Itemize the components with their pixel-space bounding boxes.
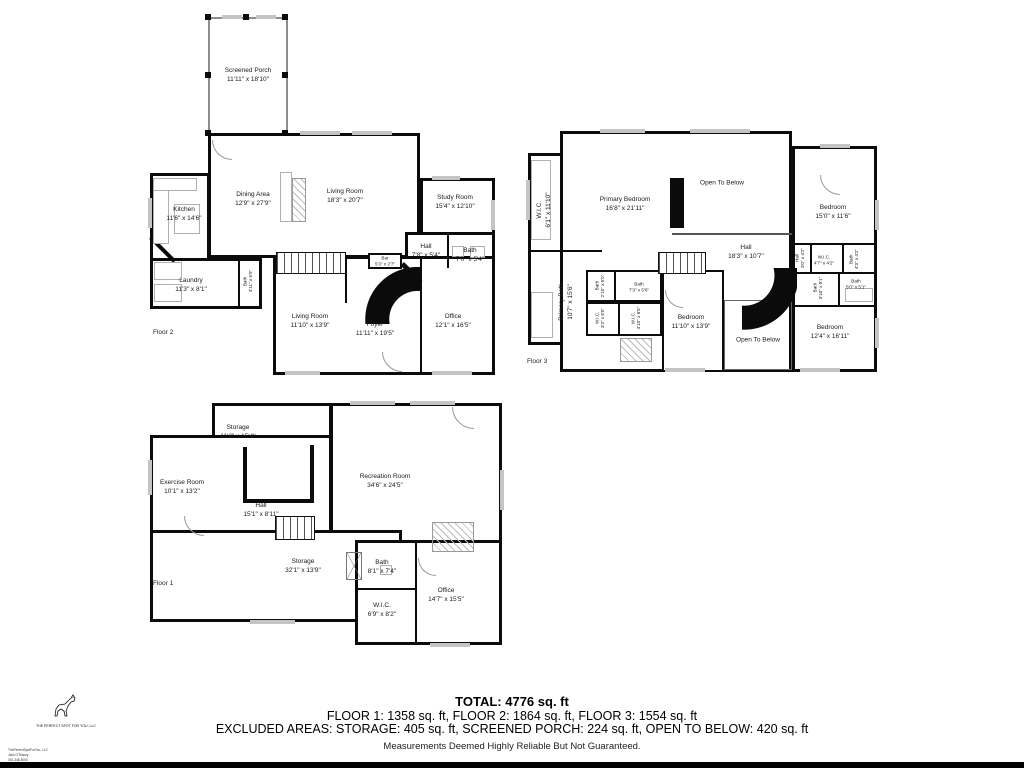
- floor1-notch-wall: [310, 445, 314, 503]
- room-label: Foyer11'11" x 19'5": [356, 320, 394, 338]
- room-label: W.I.C.4'10" x 6'5": [630, 307, 641, 330]
- room-label: Bath3'10" x 5'1": [812, 277, 823, 300]
- room-label: Hall15'1" x 8'11": [243, 501, 278, 519]
- floor-areas-text: FLOOR 1: 1358 sq. ft, FLOOR 2: 1864 sq. …: [0, 709, 1024, 723]
- floor1-bath-wic-partition: [357, 588, 415, 590]
- floor3-right-partition: [792, 272, 877, 274]
- room-label: Bedroom15'0" x 11'6": [815, 203, 850, 221]
- kitchen-counter: [153, 178, 197, 191]
- room-label: Dining Area12'9" x 27'9": [235, 190, 271, 208]
- room-label: Bath2'10" x 5'0": [594, 275, 605, 298]
- floor-2-label: Floor 2: [153, 329, 173, 336]
- window: [148, 460, 152, 495]
- window: [350, 401, 395, 405]
- room-label: W.I.C.6'1" x 11'10": [535, 192, 553, 227]
- floor3-curved-stairs: [742, 268, 797, 330]
- window: [800, 368, 840, 372]
- window: [410, 401, 455, 405]
- porch-post: [243, 14, 249, 20]
- dining-cabinet: [280, 172, 292, 222]
- floor3-balcony-rail: [672, 233, 792, 235]
- window: [148, 198, 152, 228]
- room-label: Bath5'0" x 5'1": [846, 278, 866, 289]
- room-label: Bar5'3" x 2'7": [375, 255, 395, 266]
- room-label: Bath4'11" x 5'5": [242, 270, 253, 292]
- floor3-solid-wall: [670, 178, 684, 228]
- window: [491, 200, 495, 230]
- floor3-bath-split: [614, 272, 616, 300]
- window: [690, 129, 750, 133]
- disclaimer-text: Measurements Deemed Highly Reliable But …: [0, 741, 1024, 752]
- floor3-right-split: [810, 245, 812, 272]
- room-label: Hall7'8" x 5'4": [412, 242, 440, 260]
- floor3-wic-split: [618, 304, 620, 334]
- floor3-right-split: [838, 274, 840, 305]
- floor2-straight-stairs: [276, 252, 346, 274]
- dining-hutch: [292, 178, 306, 222]
- company-name-text: THE PERFECT SPOT FOR YOU, LLC: [36, 724, 96, 728]
- fine-print: ThePerfectSpotForYou, LLC Jack O'Teskey …: [8, 748, 48, 762]
- floor3-right-partition: [792, 243, 877, 245]
- room-label: W.I.C.6'9" x 8'2": [368, 601, 396, 619]
- stair-hatch: [620, 338, 652, 362]
- floor2-laundry-bath-partition: [238, 260, 240, 307]
- window: [875, 200, 879, 230]
- floor-3-label: Floor 3: [527, 358, 547, 365]
- room-label: Screened Porch11'11" x 18'10": [225, 66, 272, 84]
- room-label: Office12'1" x 16'5": [435, 312, 471, 330]
- window: [285, 371, 320, 375]
- porch-post: [282, 72, 288, 78]
- room-label: Bedroom11'10" x 13'9": [672, 313, 711, 331]
- room-label: Storage32'1" x 13'9": [285, 557, 321, 575]
- floor1-notch-wall: [243, 447, 247, 503]
- window: [256, 15, 276, 19]
- room-label: Open To Below: [700, 178, 744, 187]
- porch-post: [205, 72, 211, 78]
- floor3-right-partition: [792, 305, 877, 307]
- window: [665, 368, 705, 372]
- bottom-bar: [0, 762, 1024, 768]
- floorplan-sheet: Screened Porch11'11" x 18'10" Kitchen11'…: [0, 0, 1024, 768]
- floor1-office-partition: [415, 542, 417, 643]
- window: [500, 470, 504, 510]
- window: [300, 131, 340, 135]
- room-label: Exercise Room10'1" x 13'2": [160, 478, 204, 496]
- room-label: Living Room11'10" x 13'9": [291, 312, 330, 330]
- room-label: W.I.C.4'7" x 4'2": [814, 254, 834, 265]
- room-label: Recreation Room34'6" x 24'5": [360, 472, 411, 490]
- window: [600, 129, 645, 133]
- window: [430, 643, 470, 647]
- company-logo: THE PERFECT SPOT FOR YOU, LLC: [36, 694, 96, 728]
- room-label: Open To Below: [736, 335, 780, 344]
- room-label: Bath7'3" x 5'6": [629, 281, 649, 292]
- room-label: Living Room18'3" x 20'7": [327, 187, 363, 205]
- room-label: W.I.C.3'4" x 6'5": [594, 308, 605, 328]
- bathtub: [531, 292, 553, 338]
- excluded-areas-text: EXCLUDED AREAS: STORAGE: 405 sq. ft, SCR…: [0, 722, 1024, 736]
- room-label: Kitchen11'6" x 14'6": [166, 205, 201, 223]
- window: [352, 131, 392, 135]
- room-label: Hall18'3" x 10'7": [728, 243, 764, 261]
- floor3-wic-bath-partition: [530, 250, 602, 252]
- window: [875, 318, 879, 348]
- window: [432, 371, 472, 375]
- office-hatch: [432, 522, 474, 552]
- window: [526, 180, 530, 220]
- floor2-bath-partition: [447, 234, 449, 268]
- room-label: Storage11'3" x 15'4": [220, 423, 255, 441]
- room-label: Bath8'1" x 7'4": [368, 558, 396, 576]
- room-label: Primary Bath10'7" x 15'6": [557, 283, 575, 321]
- dog-icon: [53, 694, 79, 718]
- utility-box: [346, 552, 362, 580]
- room-label: Study Room15'4" x 12'10": [435, 193, 474, 211]
- floor3-straight-stairs: [658, 252, 706, 274]
- room-label: Hall3'0" x 4'2": [794, 248, 805, 268]
- porch-post: [282, 14, 288, 20]
- total-area-text: TOTAL: 4776 sq. ft: [0, 694, 1024, 709]
- room-label: Laundry11'3" x 8'1": [175, 276, 207, 294]
- window: [820, 144, 850, 148]
- room-label: Bath4'3" x 4'2": [848, 249, 859, 269]
- window: [250, 620, 295, 624]
- room-label: Bath7'0" x 5'4": [456, 246, 484, 264]
- window: [432, 176, 460, 180]
- room-label: Bedroom12'4" x 16'11": [811, 323, 850, 341]
- floor2-curved-stairs: [358, 264, 420, 324]
- room-label: Office14'7" x 15'5": [428, 586, 464, 604]
- window: [222, 15, 242, 19]
- floor-1-label: Floor 1: [153, 580, 173, 587]
- porch-post: [205, 14, 211, 20]
- bathtub: [845, 288, 873, 302]
- floor3-right-split: [842, 245, 844, 272]
- floor2-foyer-office-partition: [420, 258, 422, 373]
- floor1-stairs: [275, 516, 315, 540]
- room-label: Primary Bedroom16'8" x 21'11": [600, 195, 651, 213]
